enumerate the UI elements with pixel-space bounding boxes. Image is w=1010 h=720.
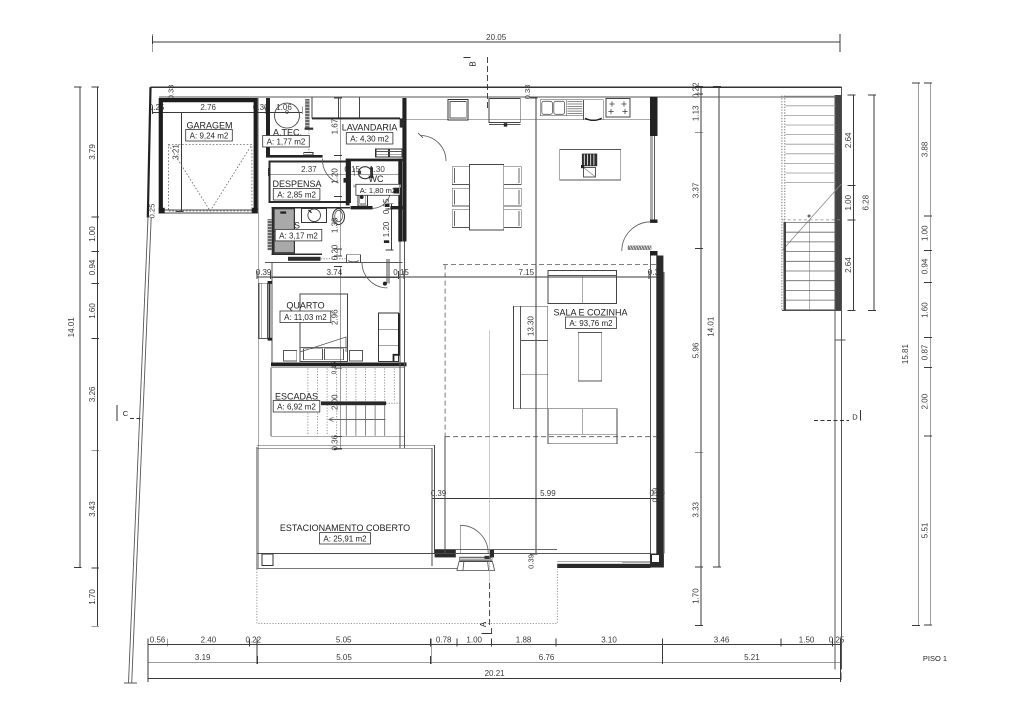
svg-text:2.37: 2.37 (301, 165, 317, 174)
svg-text:LAVANDARIA: LAVANDARIA (342, 123, 398, 133)
svg-text:A: 6,92 m2: A: 6,92 m2 (277, 403, 316, 412)
svg-text:5.21: 5.21 (744, 653, 760, 662)
svg-text:1.06: 1.06 (276, 103, 292, 112)
svg-text:A: 1,80 m2: A: 1,80 m2 (360, 186, 396, 195)
svg-text:20.21: 20.21 (485, 669, 506, 678)
svg-text:A: 2,85 m2: A: 2,85 m2 (277, 191, 316, 200)
svg-text:ESTACIONAMENTO COBERTO: ESTACIONAMENTO COBERTO (280, 523, 410, 533)
svg-text:DESPENSA: DESPENSA (272, 179, 321, 189)
svg-text:D: D (852, 413, 858, 422)
svg-text:2.00: 2.00 (921, 393, 930, 409)
svg-text:3.33: 3.33 (692, 501, 701, 517)
svg-text:7.15: 7.15 (519, 268, 535, 277)
svg-text:3.19: 3.19 (195, 653, 211, 662)
svg-text:A: 11,03 m2: A: 11,03 m2 (284, 313, 327, 322)
svg-text:A: 25,91 m2: A: 25,91 m2 (323, 535, 367, 544)
svg-text:QUARTO: QUARTO (286, 301, 324, 311)
svg-text:3.37: 3.37 (692, 182, 701, 198)
svg-text:B: B (469, 61, 478, 66)
svg-text:1.60: 1.60 (88, 303, 97, 319)
svg-text:ESCADAS: ESCADAS (275, 392, 318, 402)
svg-text:5.05: 5.05 (336, 653, 352, 662)
svg-text:0.25: 0.25 (829, 635, 845, 644)
svg-text:2.40: 2.40 (201, 635, 217, 644)
svg-text:3.26: 3.26 (88, 386, 97, 402)
svg-text:0.56: 0.56 (150, 635, 166, 644)
svg-text:1.60: 1.60 (921, 302, 930, 318)
svg-text:0.20: 0.20 (331, 244, 340, 260)
svg-text:SALA E COZINHA: SALA E COZINHA (553, 308, 627, 318)
svg-text:14.01: 14.01 (67, 317, 76, 338)
svg-text:1.00: 1.00 (921, 225, 930, 241)
svg-text:A: 93,76 m2: A: 93,76 m2 (569, 319, 613, 328)
svg-text:3.88: 3.88 (921, 141, 930, 157)
svg-text:1.88: 1.88 (516, 635, 532, 644)
svg-text:0.15: 0.15 (393, 268, 409, 277)
svg-text:6.76: 6.76 (539, 653, 555, 662)
svg-text:A: 1,77 m2: A: 1,77 m2 (267, 138, 306, 147)
svg-text:A: A (479, 621, 488, 627)
svg-text:15.81: 15.81 (901, 344, 910, 365)
svg-text:0.39: 0.39 (527, 554, 536, 569)
svg-text:5.96: 5.96 (692, 342, 701, 358)
svg-text:PISO 1: PISO 1 (923, 654, 947, 663)
svg-text:1.20: 1.20 (382, 221, 391, 237)
svg-text:0.78: 0.78 (436, 635, 452, 644)
svg-text:14.01: 14.01 (707, 316, 716, 337)
svg-text:0.22: 0.22 (246, 635, 262, 644)
svg-text:1.00: 1.00 (466, 635, 482, 644)
svg-text:2.76: 2.76 (200, 103, 216, 112)
svg-text:0.94: 0.94 (921, 258, 930, 274)
svg-text:6.28: 6.28 (862, 194, 871, 210)
svg-text:20.05: 20.05 (486, 33, 507, 42)
svg-text:2.64: 2.64 (844, 132, 853, 148)
svg-text:3.43: 3.43 (88, 501, 97, 517)
svg-text:2.96: 2.96 (331, 309, 340, 325)
svg-text:A: 4,30 m2: A: 4,30 m2 (350, 135, 389, 144)
svg-text:GARAGEM: GARAGEM (186, 121, 232, 131)
svg-text:1.50: 1.50 (799, 635, 815, 644)
svg-text:0.94: 0.94 (88, 259, 97, 275)
svg-text:0.87: 0.87 (921, 344, 930, 360)
svg-text:5.51: 5.51 (921, 522, 930, 538)
svg-text:1.67: 1.67 (331, 118, 340, 134)
svg-text:1.00: 1.00 (844, 194, 853, 210)
svg-text:A: 3,17 m2: A: 3,17 m2 (279, 231, 318, 240)
svg-text:5.05: 5.05 (336, 635, 352, 644)
svg-text:5.99: 5.99 (540, 489, 556, 498)
svg-text:A: 9,24 m2: A: 9,24 m2 (190, 132, 229, 141)
svg-text:2.64: 2.64 (844, 257, 853, 273)
svg-text:1.70: 1.70 (88, 589, 97, 605)
svg-text:13.30: 13.30 (526, 316, 535, 337)
svg-text:1.00: 1.00 (88, 226, 97, 242)
svg-text:1.70: 1.70 (692, 588, 701, 604)
svg-text:WC: WC (369, 174, 384, 184)
svg-text:C: C (123, 409, 129, 418)
svg-text:0.22: 0.22 (692, 82, 701, 98)
svg-text:3.10: 3.10 (601, 635, 617, 644)
svg-text:0.39: 0.39 (431, 489, 447, 498)
svg-text:1.13: 1.13 (692, 105, 701, 121)
svg-text:3.46: 3.46 (714, 635, 730, 644)
svg-text:3.79: 3.79 (88, 144, 97, 160)
